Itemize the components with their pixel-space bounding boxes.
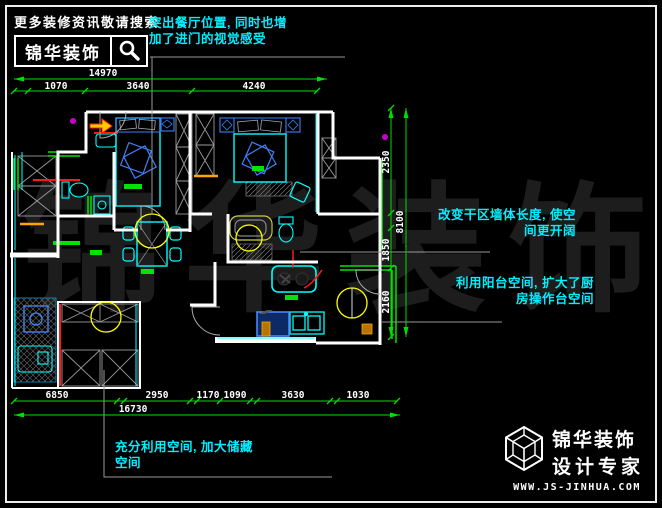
storage-cabinet-top [62, 304, 138, 322]
footer-logo: 锦华装饰 设计专家 WWW.JS-JINHUA.COM [502, 424, 652, 493]
dim-bottom-seg-5: 3630 [282, 390, 305, 401]
nightstand-1-decor [162, 120, 172, 128]
kitchen-door-arc [192, 307, 220, 335]
washbasin-bath1 [94, 196, 110, 214]
annotation-storage: 充分利用空间, 加大储藏 空间 [115, 439, 253, 471]
dim-top-total: 14970 [89, 68, 118, 79]
marker-dot-entry [70, 118, 76, 124]
storage-cabinet-bottom [62, 350, 138, 386]
cube-logo-icon [502, 424, 546, 479]
dim-right-total: 8100 [395, 210, 406, 233]
annotation-line: 改变干区墙体长度, 使空 [428, 207, 576, 223]
footer-subtitle: 设计专家 [552, 452, 644, 479]
bathroom-floor-hatch [232, 244, 272, 260]
toilet-bath1 [62, 182, 88, 198]
dim-bottom-seg-4: 1090 [224, 390, 247, 401]
stool-entry [96, 134, 116, 147]
chair-bedroom2 [289, 181, 310, 202]
leader-lines [104, 57, 502, 477]
door-swings [100, 112, 380, 335]
wardrobe-bedroom2 [196, 114, 214, 176]
annotation-line: 空间 [115, 455, 253, 471]
dim-top-seg-3: 4240 [243, 81, 266, 92]
footer-website: WWW.JS-JINHUA.COM [502, 482, 652, 493]
dim-top-seg-1: 1070 [45, 81, 68, 92]
dim-right-seg-1: 2350 [381, 150, 392, 173]
bedroom1-door-arc [141, 206, 165, 230]
annotation-line: 加了进门的视觉感受 [149, 31, 287, 47]
dim-right-seg-2: 1850 [381, 238, 392, 261]
annotation-line: 充分利用空间, 加大储藏 [115, 439, 253, 455]
bedroom-rug-hatch [246, 182, 292, 196]
annotation-balcony-kitchen: 利用阳台空间, 扩大了厨 房操作台空间 [432, 275, 594, 307]
dim-right-seg-3: 2160 [381, 290, 392, 313]
dim-bottom-seg-1: 6850 [46, 390, 69, 401]
footer-brand: 锦华装饰 [552, 425, 644, 452]
dimension-labels: 14970 1070 3640 4240 2350 8100 1850 2160… [45, 68, 406, 415]
sink [290, 312, 324, 334]
light-dining [135, 214, 169, 248]
entry-arrow [90, 119, 112, 133]
dim-bottom-seg-6: 1030 [347, 390, 370, 401]
balcony-floor-hatch [14, 298, 56, 382]
annotation-line: 间更开阔 [428, 223, 576, 239]
dim-bottom-total: 16730 [119, 404, 148, 415]
annotation-dining: 突出餐厅位置, 同时也增 加了进门的视觉感受 [149, 15, 287, 47]
red-accents [33, 133, 322, 386]
walls [10, 112, 380, 388]
search-icon [110, 37, 146, 65]
balcony-rail-right [392, 266, 396, 343]
balcony-rail-top [340, 266, 396, 270]
banner-search-box: 锦华装饰 [14, 35, 148, 67]
dim-bottom-seg-2: 2950 [146, 390, 169, 401]
banner-tagline: 更多装修资讯敬请搜索 [14, 12, 159, 31]
dimension-lines [11, 79, 406, 415]
stove [272, 266, 316, 292]
wardrobe-left [18, 156, 56, 216]
bed-1 [116, 118, 160, 206]
dim-bottom-seg-3: 1170 [197, 390, 220, 401]
annotation-dry-zone: 改变干区墙体长度, 使空 间更开阔 [428, 207, 576, 239]
cad-floorplan-screenshot: 锦华装饰 [0, 0, 662, 508]
annotation-line: 突出餐厅位置, 同时也增 [149, 15, 287, 31]
marker-dot-right [382, 134, 388, 140]
toilet-bath2 [279, 217, 293, 242]
banner-brand: 锦华装饰 [16, 37, 110, 65]
dimension-arrows [14, 77, 409, 418]
search-banner: 更多装修资讯敬请搜索 锦华装饰 [14, 12, 159, 67]
dim-top-seg-2: 3640 [127, 81, 150, 92]
wardrobes-cabinets [18, 114, 336, 386]
annotation-line: 利用阳台空间, 扩大了厨 [432, 275, 594, 291]
annotation-line: 房操作台空间 [432, 291, 594, 307]
bed-2 [220, 118, 300, 182]
